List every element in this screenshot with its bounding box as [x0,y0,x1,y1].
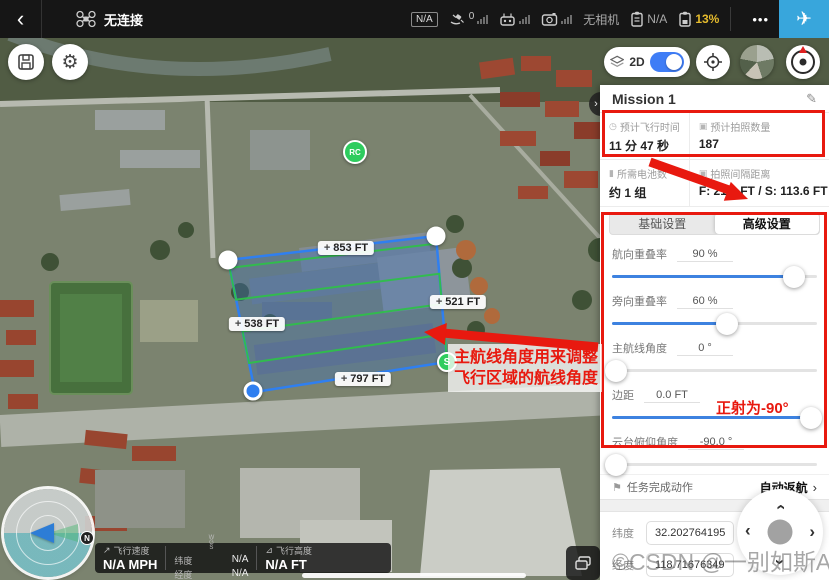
tab-basic-settings[interactable]: 基础设置 [610,213,715,234]
move-icon: + [341,373,347,385]
compass-orientation-button[interactable] [786,45,820,79]
stat-photo-interval: ▣拍照间隔距离 F: 21.3 FT / S: 113.6 FT [690,160,829,207]
aircraft-connection: 无连接 [76,10,143,29]
chevron-left-icon: ‹ [17,6,24,32]
slider-label: 主航线角度 [612,340,667,356]
lat-value: N/A [196,554,248,567]
slider-row-margin: 边距 0.0 FT [612,380,817,427]
slider-value-field[interactable]: 0 ° [677,341,733,356]
edit-icon[interactable]: ✎ [806,91,817,107]
stat-flight-time: ◷预计飞行时间 11 分 47 秒 [600,113,690,160]
map-mode-label: 2D [629,55,644,69]
nudge-right-button[interactable]: › [809,522,815,542]
remote-controller-icon [499,12,516,26]
map-mode-toggle[interactable]: 2D [604,47,690,77]
compass-icon [791,50,815,74]
rc-signal[interactable] [499,12,530,26]
edge-length-label: +853 FT [318,241,374,255]
back-button[interactable]: ‹ [0,0,42,38]
camera-icon [541,12,558,26]
course-overlap-slider[interactable] [612,275,817,278]
move-icon: + [235,318,241,330]
slider-thumb[interactable] [783,266,805,288]
slider-value-field[interactable]: 90 % [677,247,733,262]
side-overlap-slider[interactable] [612,322,817,325]
crs-label: WGS [208,535,214,550]
flight-speed-value: N/A MPH [103,557,157,572]
camera-icon: ▣ [699,121,708,132]
mission-title: Mission 1 [612,91,806,107]
slider-thumb[interactable] [716,313,738,335]
polygon-vertex[interactable] [219,251,238,270]
mission-panel: Mission 1 ✎ ◷预计飞行时间 11 分 47 秒 ▣预计拍照数量 18… [600,85,829,580]
mission-stats: ◷预计飞行时间 11 分 47 秒 ▣预计拍照数量 187 ▮所需电池数 约 1… [600,113,829,207]
airplane-icon: ✈ [796,8,812,31]
mission-header: Mission 1 ✎ [600,85,829,113]
slider-row-side-overlap: 旁向重叠率 60 % [612,286,817,333]
aircraft-battery-status[interactable]: 13% [678,11,719,27]
connection-status: 无连接 [104,10,143,29]
flight-speed: ↗飞行速度 N/A MPH [95,543,165,573]
slider-value-field[interactable]: -90.0 ° [688,435,744,450]
move-icon: + [324,242,330,254]
home-indicator[interactable] [302,573,526,578]
slider-label: 旁向重叠率 [612,293,667,309]
locate-me-button[interactable] [696,45,730,79]
clock-icon: ◷ [609,121,617,132]
flight-altitude: ⊿飞行高度 N/A FT [257,543,320,573]
crosshair-icon [703,52,723,72]
save-mission-button[interactable] [8,44,44,80]
drone-icon [76,10,96,28]
rc-location-marker: RC [343,140,367,164]
satellite-count: 0 [469,11,475,22]
north-badge: N [80,531,94,545]
satellite-icon [449,12,466,27]
camera-status: 无相机 [583,11,619,28]
settings-button[interactable]: ⚙ [52,44,88,80]
lng-value: N/A [196,568,248,580]
takeoff-button[interactable]: ✈ [779,0,829,38]
more-menu-button[interactable]: ••• [742,12,779,27]
advanced-settings: 航向重叠率 90 % 旁向重叠率 60 % 主航线角度 0 ° [600,239,829,474]
altitude-icon: ⊿ [265,545,273,556]
camera-icon: ▣ [699,168,708,179]
signal-bars-icon [519,14,530,24]
battery-icon: ▮ [609,168,614,179]
save-icon [17,53,35,71]
gps-mode-badge: N/A [411,12,438,27]
rc-battery-value: N/A [647,12,667,26]
battery-icon [678,11,692,27]
position-readout: WGS 纬度N/A 经度N/A [166,543,256,573]
top-status-bar: ‹ 无连接 N/A [0,0,829,38]
satellite-status[interactable]: 0 [449,12,489,27]
slider-thumb[interactable] [800,407,822,429]
slider-value-field[interactable]: 60 % [677,294,733,309]
slider-row-gimbal-pitch: 云台俯仰角度 -90.0 ° [612,427,817,474]
gear-icon: ⚙ [61,51,78,74]
edge-length-label: +521 FT [430,295,486,309]
camera-signal[interactable] [541,12,572,26]
edge-length-label: +538 FT [229,317,285,331]
watermark: ©CSDN @一别如斯AA [612,543,829,577]
rc-battery-status[interactable]: N/A [630,11,667,27]
chevron-right-icon: › [813,480,817,495]
flight-altitude-value: N/A FT [265,557,312,572]
latitude-label: 纬度 [612,525,638,541]
speed-icon: ↗ [103,545,111,556]
gimbal-pitch-slider[interactable] [612,463,817,466]
slider-thumb[interactable] [605,360,627,382]
slider-label: 云台俯仰角度 [612,434,678,450]
divider [730,7,731,31]
2d-toggle[interactable] [650,52,684,72]
clipboard-battery-icon [630,11,644,27]
move-icon: + [436,296,442,308]
minimap-button[interactable] [740,45,774,79]
stat-photo-count: ▣预计拍照数量 187 [690,113,829,160]
toggle-knob [666,54,682,70]
map-layers-button[interactable] [566,546,600,580]
latitude-input[interactable] [646,521,734,545]
flag-icon: ⚑ [612,481,622,494]
stat-batteries-needed: ▮所需电池数 约 1 组 [600,160,690,207]
layers-icon [610,55,624,69]
layers-stack-icon [574,555,592,571]
settings-tabs: 基础设置 高级设置 [609,212,820,235]
slider-label: 边距 [612,387,634,403]
nudge-up-button[interactable]: › [770,504,790,510]
aircraft-arrow-icon [30,523,54,543]
polygon-vertex[interactable] [427,227,446,246]
nudge-left-button[interactable]: › [745,522,751,542]
finish-action-label: 任务完成动作 [627,479,755,495]
route-angle-slider[interactable] [612,369,817,372]
slider-value-field[interactable]: 0.0 FT [644,388,700,403]
attitude-compass: N [4,489,92,577]
app-screen: +853 FT +521 FT +538 FT +797 FT S RC ⚙ [0,0,829,580]
dpad-center-button[interactable] [768,520,793,545]
margin-slider[interactable] [612,416,817,419]
chevron-right-icon: › [594,98,598,110]
telemetry-bar: ↗飞行速度 N/A MPH WGS 纬度N/A 经度N/A ⊿飞行高度 N/A … [95,543,391,573]
slider-row-course-overlap: 航向重叠率 90 % [612,239,817,286]
tab-advanced-settings[interactable]: 高级设置 [715,213,820,234]
route-start-marker[interactable]: S [437,352,457,372]
battery-percent: 13% [695,12,719,26]
edge-length-label: +797 FT [335,372,391,386]
signal-bars-icon [561,14,572,24]
slider-label: 航向重叠率 [612,246,667,262]
polygon-vertex-selected[interactable] [244,382,263,401]
slider-thumb[interactable] [605,454,627,476]
slider-row-route-angle: 主航线角度 0 ° [612,333,817,380]
signal-bars-icon [477,14,488,24]
